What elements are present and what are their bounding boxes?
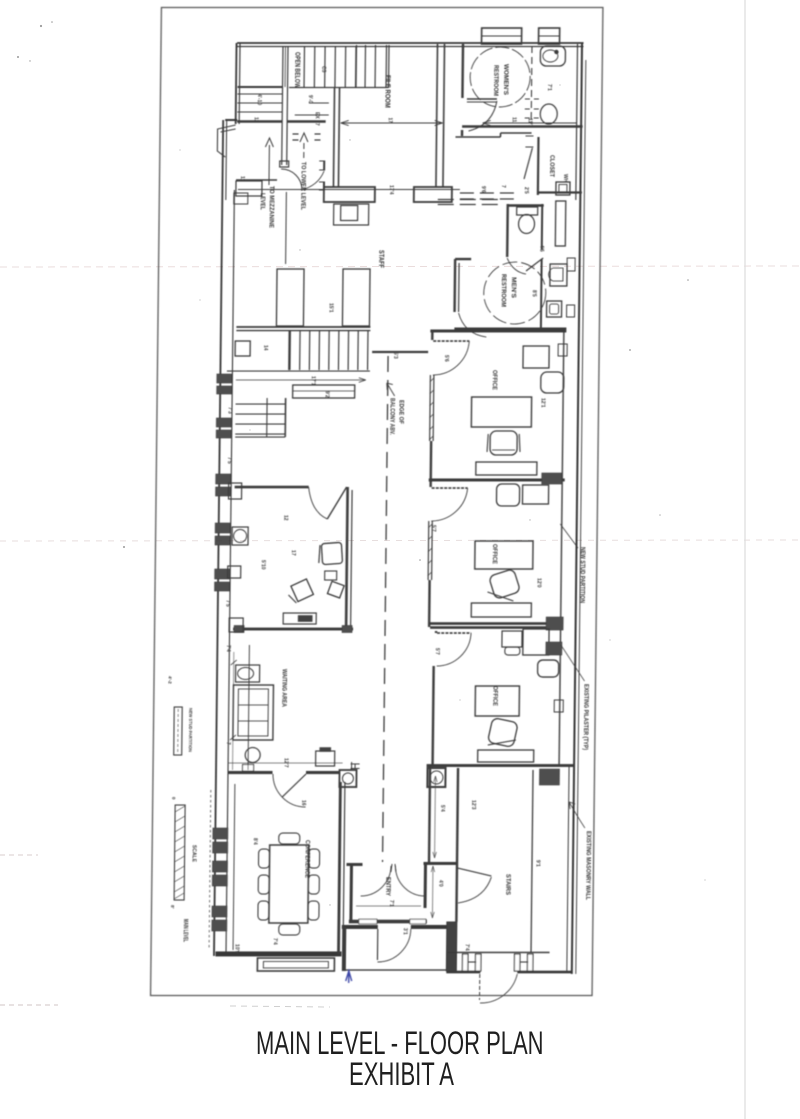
svg-text:11: 11 bbox=[239, 176, 245, 182]
svg-text:7'5: 7'5 bbox=[226, 457, 232, 464]
svg-text:5'3: 5'3 bbox=[392, 352, 398, 359]
svg-text:5'7: 5'7 bbox=[430, 525, 436, 532]
svg-text:5'4: 5'4 bbox=[439, 805, 445, 812]
svg-text:7'4: 7'4 bbox=[225, 645, 231, 652]
svg-text:12'7: 12'7 bbox=[283, 758, 289, 768]
svg-text:14: 14 bbox=[262, 345, 268, 351]
svg-text:12: 12 bbox=[253, 117, 259, 123]
svg-text:5'7: 5'7 bbox=[434, 648, 440, 655]
svg-text:RESTROOM: RESTROOM bbox=[492, 65, 499, 96]
svg-text:NEW STUD PARTITION: NEW STUD PARTITION bbox=[188, 708, 193, 752]
svg-text:TO MEZZANINE: TO MEZZANINE bbox=[267, 186, 274, 228]
svg-text:WOMEN'S: WOMEN'S bbox=[502, 64, 509, 96]
svg-text:EDGE OF: EDGE OF bbox=[397, 400, 403, 424]
svg-text:4'6: 4'6 bbox=[538, 245, 544, 252]
svg-text:STAFF: STAFF bbox=[377, 250, 384, 269]
svg-text:5'10: 5'10 bbox=[260, 560, 266, 570]
svg-text:SCALE: SCALE bbox=[191, 845, 197, 862]
svg-text:WAITING AREA: WAITING AREA bbox=[280, 669, 287, 707]
svg-text:MEN'S: MEN'S bbox=[510, 277, 517, 299]
svg-text:12'3: 12'3 bbox=[470, 800, 476, 810]
svg-text:16: 16 bbox=[300, 800, 306, 806]
svg-text:9'2: 9'2 bbox=[324, 391, 330, 398]
svg-text:MAIN LEVEL: MAIN LEVEL bbox=[182, 919, 189, 942]
svg-text:8'5: 8'5 bbox=[531, 290, 537, 297]
svg-text:2'5: 2'5 bbox=[523, 187, 529, 194]
svg-text:EXHIBIT A: EXHIBIT A bbox=[349, 1055, 454, 1092]
svg-text:17'1: 17'1 bbox=[310, 376, 316, 386]
svg-text:CONFERENCE: CONFERENCE bbox=[303, 840, 310, 878]
svg-text:15'1: 15'1 bbox=[328, 303, 334, 313]
svg-text:ENTRY: ENTRY bbox=[384, 877, 391, 897]
svg-text:7'5: 7'5 bbox=[224, 600, 230, 607]
svg-text:BALCONY ABV.: BALCONY ABV. bbox=[388, 398, 394, 435]
svg-text:7'4: 7'4 bbox=[464, 944, 470, 951]
svg-text:NEW STUD PARTITION: NEW STUD PARTITION bbox=[578, 547, 585, 603]
svg-text:CLOSET: CLOSET bbox=[548, 155, 555, 177]
svg-text:EXISTING PILASTER (TYP): EXISTING PILASTER (TYP) bbox=[582, 684, 589, 750]
svg-text:11: 11 bbox=[511, 117, 517, 123]
svg-text:9'1: 9'1 bbox=[534, 860, 540, 867]
svg-text:7: 7 bbox=[225, 742, 231, 745]
svg-text:EX 17: EX 17 bbox=[314, 112, 320, 126]
svg-text:17: 17 bbox=[290, 550, 296, 556]
svg-text:3'1: 3'1 bbox=[402, 928, 408, 935]
svg-text:12'1: 12'1 bbox=[540, 398, 546, 408]
svg-text:7'3: 7'3 bbox=[226, 407, 232, 414]
svg-text:5'6: 5'6 bbox=[443, 355, 449, 362]
svg-text:STAIRS: STAIRS bbox=[504, 874, 511, 896]
svg-text:WH: WH bbox=[562, 174, 568, 183]
svg-text:8': 8' bbox=[170, 905, 175, 909]
svg-text:7'4: 7'4 bbox=[272, 938, 278, 945]
svg-text:C3: C3 bbox=[320, 66, 326, 73]
svg-text:0: 0 bbox=[171, 797, 176, 800]
svg-text:OFFICE: OFFICE bbox=[491, 686, 498, 706]
svg-text:17: 17 bbox=[387, 118, 393, 124]
svg-text:7'1: 7'1 bbox=[546, 84, 552, 91]
svg-text:7'1: 7'1 bbox=[388, 900, 394, 907]
svg-text:OFFICE: OFFICE bbox=[491, 544, 498, 564]
svg-text:8'4: 8'4 bbox=[252, 838, 258, 845]
svg-text:17'4: 17'4 bbox=[388, 185, 394, 195]
svg-text:7: 7 bbox=[500, 185, 506, 188]
svg-text:4'0: 4'0 bbox=[437, 880, 443, 887]
svg-text:12'0: 12'0 bbox=[536, 578, 542, 588]
svg-text:FILE ROOM: FILE ROOM bbox=[383, 75, 390, 108]
svg-text:9'-0: 9'-0 bbox=[307, 95, 313, 104]
svg-text:10'9: 10'9 bbox=[234, 944, 240, 954]
svg-text:OFFICE: OFFICE bbox=[491, 370, 498, 390]
svg-text:TO LOWER LEVEL: TO LOWER LEVEL bbox=[299, 162, 307, 210]
svg-text:4'-2: 4'-2 bbox=[167, 676, 172, 684]
svg-text:OPEN BELOW: OPEN BELOW bbox=[293, 52, 300, 88]
svg-text:4'-10: 4'-10 bbox=[256, 94, 262, 105]
svg-text:RESTROOM: RESTROOM bbox=[500, 274, 507, 307]
svg-text:LEVEL: LEVEL bbox=[259, 193, 266, 210]
svg-text:9'6: 9'6 bbox=[480, 186, 486, 193]
svg-text:EXISTING MASONRY WALL: EXISTING MASONRY WALL bbox=[584, 831, 591, 900]
svg-text:12: 12 bbox=[282, 515, 288, 521]
